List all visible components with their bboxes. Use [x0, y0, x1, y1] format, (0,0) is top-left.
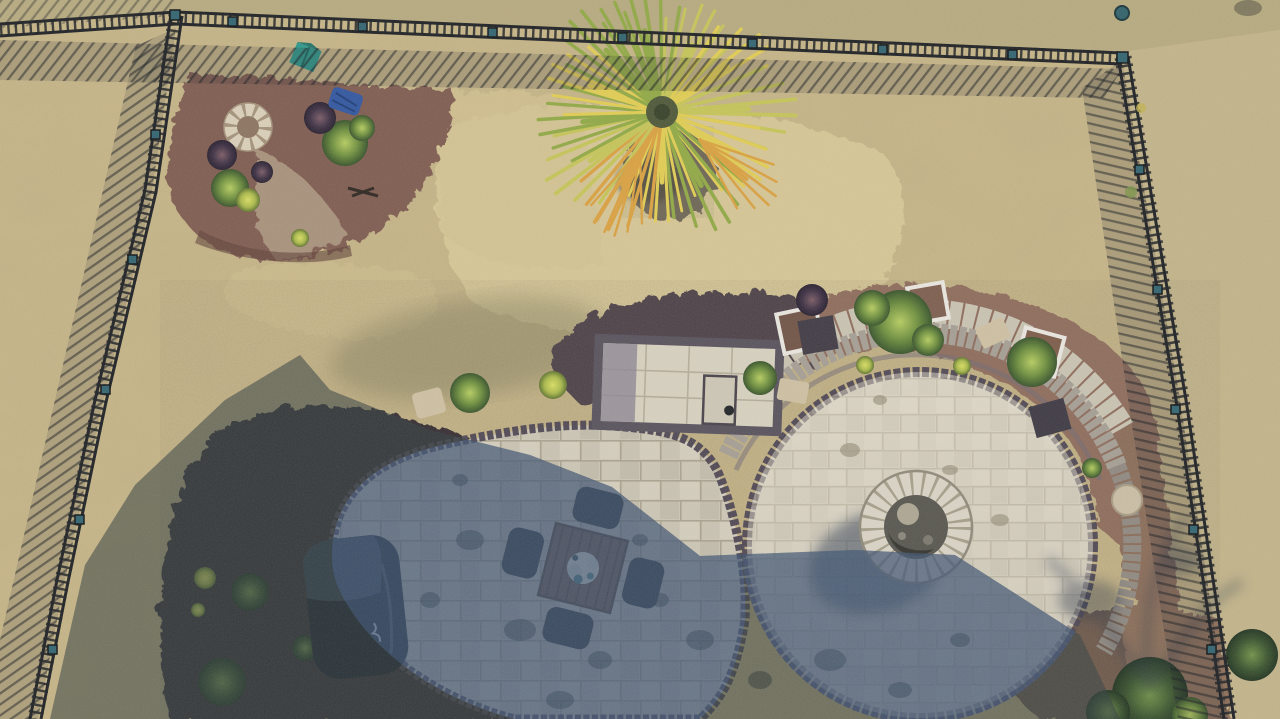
backyard-aerial-photo: Aerial drone photograph of a fenced back… — [0, 0, 1280, 719]
photo-grain-dark — [0, 0, 1280, 719]
